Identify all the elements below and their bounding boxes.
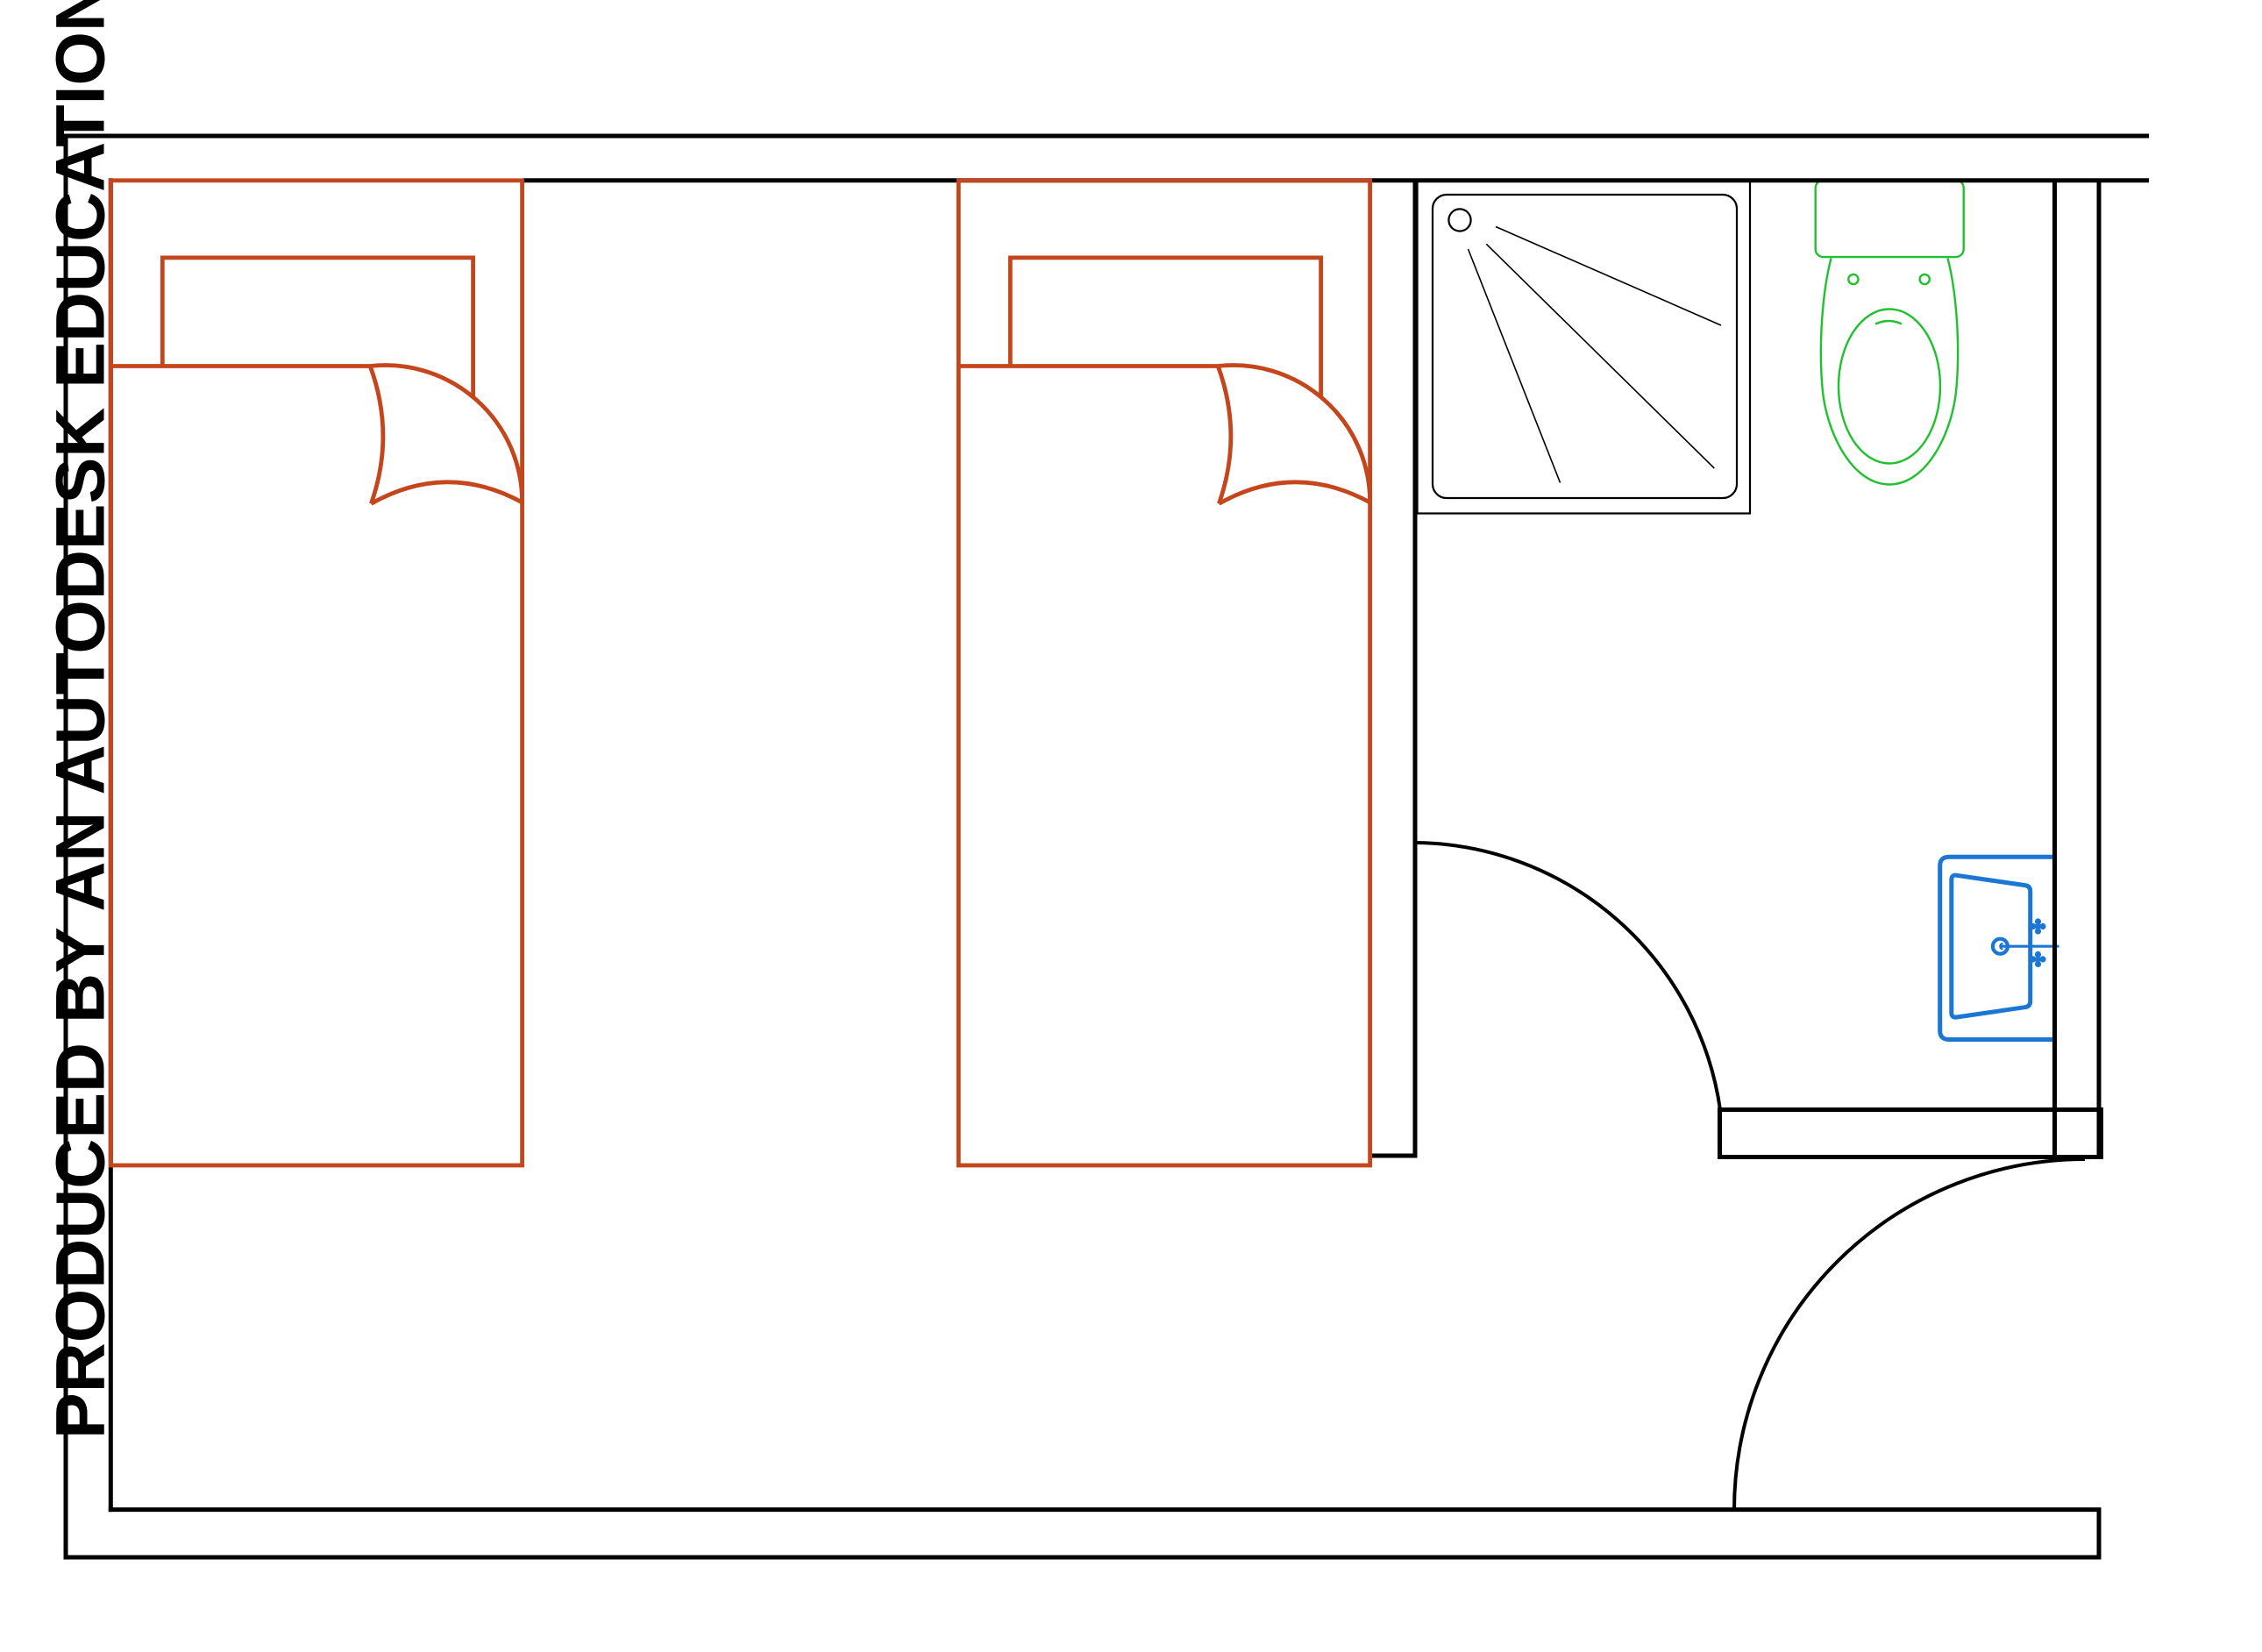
svg-text:PRODUCED BY AN AUTODESK EDUCAT: PRODUCED BY AN AUTODESK EDUCATIONAL PROD… — [41, 0, 119, 1439]
